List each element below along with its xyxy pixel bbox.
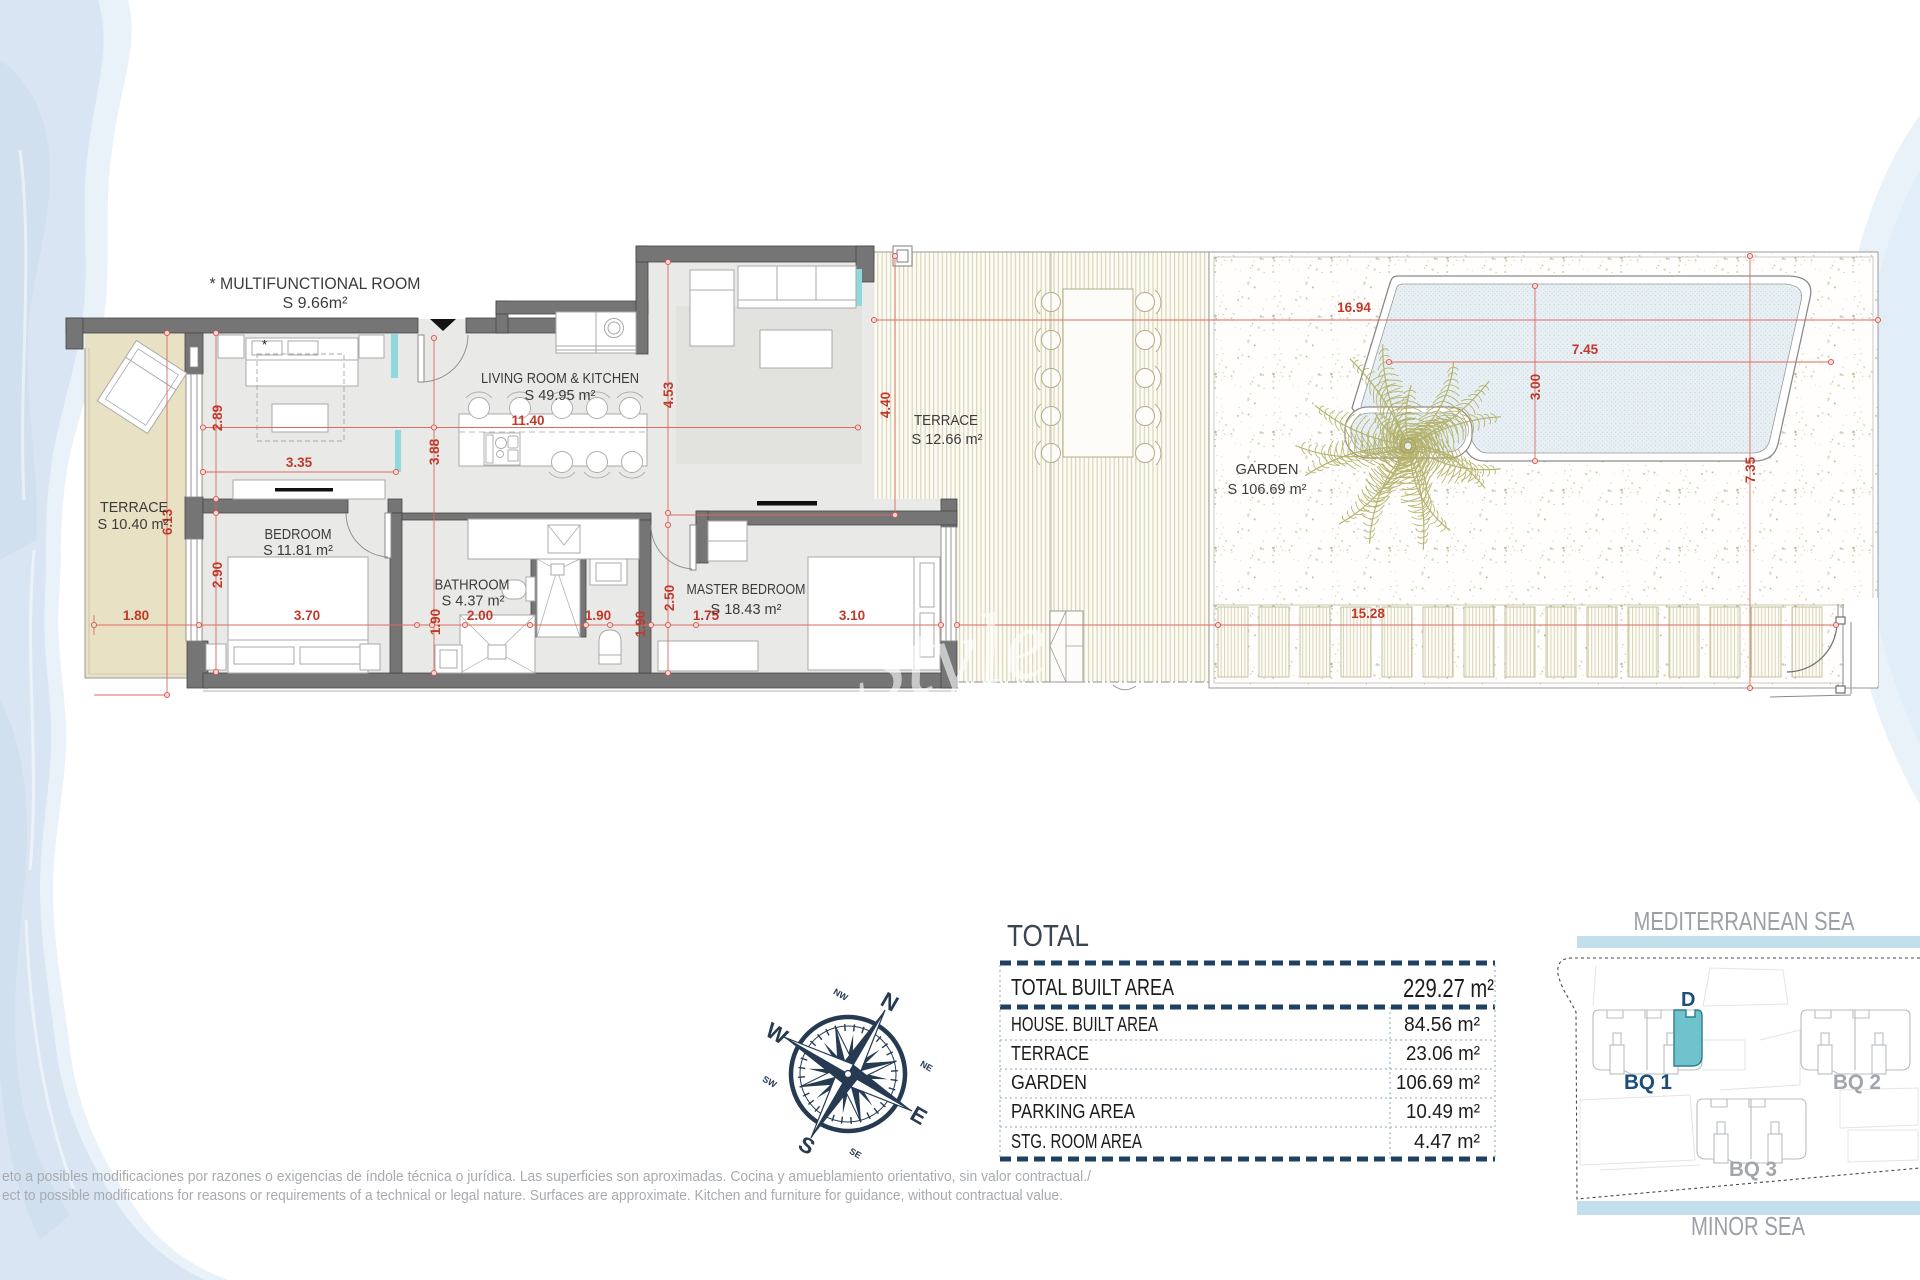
svg-text:GARDEN: GARDEN bbox=[1011, 1072, 1087, 1094]
svg-text:GARDEN: GARDEN bbox=[1236, 462, 1299, 478]
svg-text:3.70: 3.70 bbox=[294, 608, 320, 623]
svg-text:7.45: 7.45 bbox=[1572, 342, 1599, 357]
svg-text:2.00: 2.00 bbox=[467, 608, 493, 623]
svg-text:MINOR SEA: MINOR SEA bbox=[1691, 1211, 1806, 1241]
svg-text:S 106.69 m²: S 106.69 m² bbox=[1228, 482, 1307, 498]
svg-text:TERRACE: TERRACE bbox=[914, 413, 978, 429]
svg-text:HOUSE. BUILT AREA: HOUSE. BUILT AREA bbox=[1011, 1014, 1158, 1036]
svg-text:SW: SW bbox=[761, 1074, 779, 1090]
svg-text:NW: NW bbox=[832, 987, 850, 1003]
svg-text:1.80: 1.80 bbox=[123, 608, 149, 623]
svg-text:*: * bbox=[262, 337, 267, 352]
svg-text:23.06 m²: 23.06 m² bbox=[1406, 1043, 1480, 1065]
svg-text:MASTER BEDROOM: MASTER BEDROOM bbox=[687, 582, 806, 598]
svg-text:4.40: 4.40 bbox=[878, 392, 893, 418]
svg-text:PARKING AREA: PARKING AREA bbox=[1011, 1101, 1136, 1123]
svg-text:229.27 m²: 229.27 m² bbox=[1403, 973, 1494, 1003]
svg-text:S 12.66 m²: S 12.66 m² bbox=[912, 432, 983, 448]
svg-text:S 9.66m²: S 9.66m² bbox=[283, 295, 349, 312]
svg-text:15.28: 15.28 bbox=[1351, 606, 1385, 621]
svg-text:S 10.40 m²: S 10.40 m² bbox=[98, 517, 169, 533]
svg-text:E: E bbox=[906, 1101, 931, 1130]
svg-text:BQ 1: BQ 1 bbox=[1624, 1071, 1672, 1094]
svg-text:D: D bbox=[1681, 989, 1695, 1011]
svg-text:TOTAL BUILT AREA: TOTAL BUILT AREA bbox=[1011, 974, 1175, 1000]
svg-text:BQ 2: BQ 2 bbox=[1833, 1071, 1881, 1094]
svg-text:84.56 m²: 84.56 m² bbox=[1404, 1014, 1480, 1036]
svg-text:S: S bbox=[794, 1131, 819, 1160]
svg-text:LIVING ROOM & KITCHEN: LIVING ROOM & KITCHEN bbox=[481, 371, 639, 387]
svg-text:106.69 m²: 106.69 m² bbox=[1396, 1072, 1480, 1094]
svg-text:2.89: 2.89 bbox=[210, 405, 225, 431]
svg-text:NE: NE bbox=[919, 1059, 935, 1074]
svg-text:S 18.43 m²: S 18.43 m² bbox=[711, 602, 782, 618]
svg-text:STG. ROOM AREA: STG. ROOM AREA bbox=[1011, 1131, 1142, 1153]
svg-text:11.40: 11.40 bbox=[511, 413, 544, 428]
svg-text:ect to possible modifications: ect to possible modifications for reason… bbox=[2, 1188, 1063, 1204]
svg-text:1.90: 1.90 bbox=[585, 608, 611, 623]
svg-text:2.90: 2.90 bbox=[210, 562, 225, 588]
svg-text:S 49.95 m²: S 49.95 m² bbox=[525, 388, 596, 404]
svg-text:S 4.37 m²: S 4.37 m² bbox=[442, 594, 505, 610]
svg-text:W: W bbox=[761, 1017, 792, 1049]
svg-text:1.90: 1.90 bbox=[428, 609, 443, 635]
svg-text:4.47 m²: 4.47 m² bbox=[1414, 1131, 1480, 1153]
svg-text:BQ 3: BQ 3 bbox=[1729, 1158, 1777, 1181]
svg-text:N: N bbox=[877, 987, 903, 1017]
svg-text:BATHROOM: BATHROOM bbox=[435, 578, 510, 594]
svg-text:TERRACE: TERRACE bbox=[1011, 1043, 1089, 1065]
svg-text:3.88: 3.88 bbox=[427, 438, 442, 465]
svg-text:1.90: 1.90 bbox=[633, 611, 648, 637]
svg-text:BEDROOM: BEDROOM bbox=[265, 527, 332, 543]
svg-text:3.00: 3.00 bbox=[1528, 374, 1543, 400]
svg-text:SE: SE bbox=[848, 1146, 863, 1161]
svg-text:4.53: 4.53 bbox=[661, 381, 676, 408]
svg-text:16.94: 16.94 bbox=[1337, 300, 1371, 315]
svg-text:10.49 m²: 10.49 m² bbox=[1406, 1101, 1480, 1123]
svg-text:eto a posibles modificaciones: eto a posibles modificaciones por razone… bbox=[2, 1169, 1092, 1185]
svg-text:7.35: 7.35 bbox=[1743, 456, 1758, 483]
svg-text:2.50: 2.50 bbox=[662, 585, 677, 611]
svg-text:TERRACE: TERRACE bbox=[100, 500, 168, 516]
svg-text:MEDITERRANEAN SEA: MEDITERRANEAN SEA bbox=[1634, 906, 1856, 936]
svg-text:* MULTIFUNCTIONAL ROOM: * MULTIFUNCTIONAL ROOM bbox=[210, 275, 421, 293]
svg-text:S 11.81 m²: S 11.81 m² bbox=[263, 543, 333, 559]
svg-text:3.35: 3.35 bbox=[286, 455, 313, 470]
svg-text:TOTAL: TOTAL bbox=[1007, 918, 1089, 953]
